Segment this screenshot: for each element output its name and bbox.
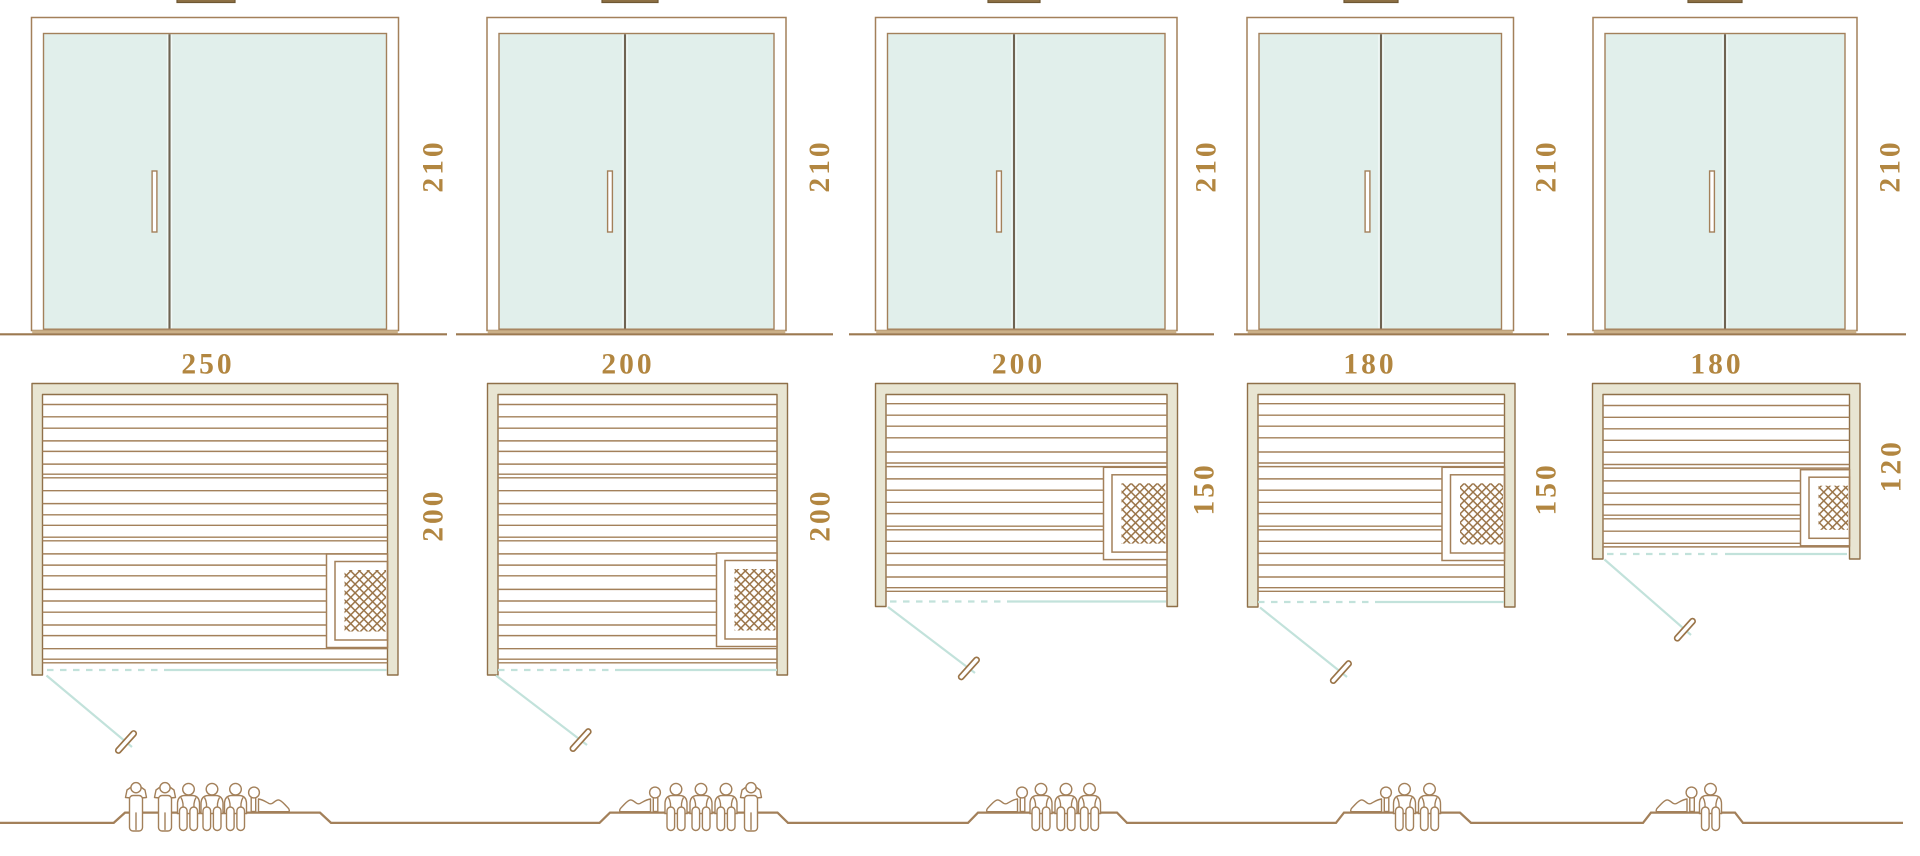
svg-text:200: 200 [992, 349, 1045, 381]
svg-text:200: 200 [418, 488, 450, 541]
svg-text:210: 210 [1191, 139, 1223, 192]
svg-text:210: 210 [418, 139, 450, 192]
svg-text:250: 250 [181, 349, 234, 381]
svg-text:200: 200 [601, 349, 654, 381]
svg-text:150: 150 [1189, 462, 1221, 515]
svg-text:180: 180 [1690, 349, 1743, 381]
svg-text:210: 210 [804, 139, 836, 192]
svg-text:150: 150 [1531, 462, 1563, 515]
svg-text:200: 200 [805, 488, 837, 541]
svg-text:180: 180 [1343, 349, 1396, 381]
svg-text:210: 210 [1531, 139, 1563, 192]
svg-text:120: 120 [1876, 439, 1908, 492]
svg-text:210: 210 [1875, 139, 1907, 192]
